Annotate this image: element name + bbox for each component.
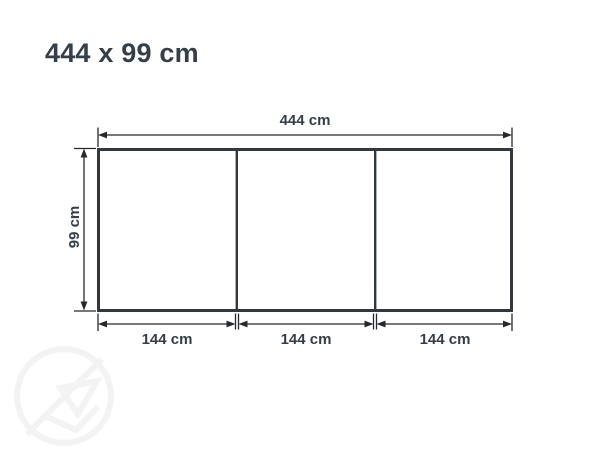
total-width-label: 444 cm bbox=[255, 112, 355, 129]
cabinet-outline bbox=[99, 150, 512, 311]
dimension-section-2 bbox=[239, 314, 374, 330]
dimension-section-1 bbox=[98, 314, 236, 332]
section-3-width-label: 144 cm bbox=[395, 331, 495, 348]
dimension-section-3 bbox=[377, 314, 513, 332]
dimension-total-width bbox=[98, 128, 512, 148]
dimension-drawing-page: 444 x 99 cm bbox=[0, 0, 607, 455]
arrow-right-icon bbox=[365, 321, 374, 328]
arrow-left-icon bbox=[239, 321, 248, 328]
section-1-width-label: 144 cm bbox=[117, 331, 217, 348]
arrow-down-icon bbox=[81, 302, 88, 311]
section-2-width-label: 144 cm bbox=[256, 331, 356, 348]
arrow-left-icon bbox=[377, 321, 386, 328]
arrow-left-icon bbox=[98, 321, 107, 328]
arrow-right-icon bbox=[503, 132, 512, 139]
cabinet-front-diagram bbox=[0, 0, 607, 455]
arrow-right-icon bbox=[503, 321, 512, 328]
arrow-up-icon bbox=[81, 149, 88, 158]
arrow-left-icon bbox=[98, 132, 107, 139]
arrow-right-icon bbox=[227, 321, 236, 328]
cabinet-outer-frame bbox=[99, 150, 512, 311]
